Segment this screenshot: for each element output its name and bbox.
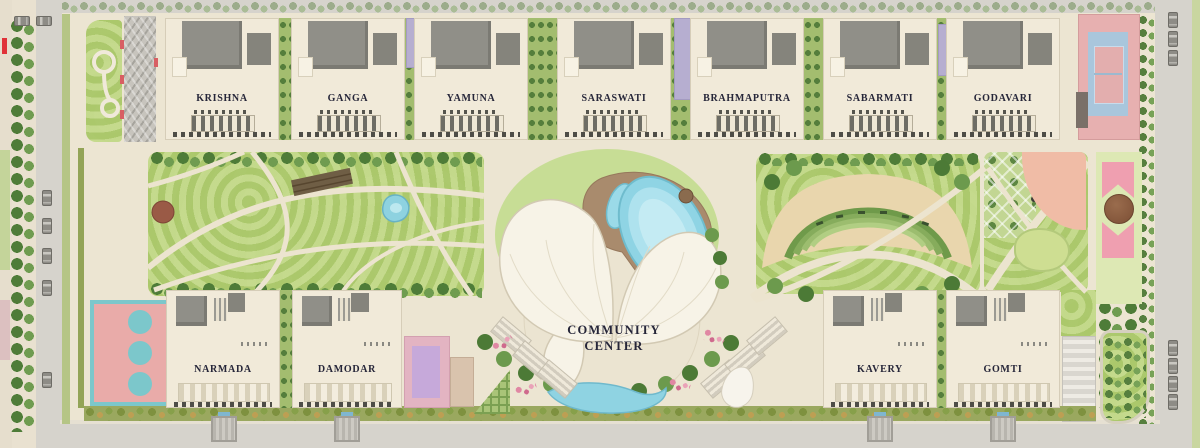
lavender-annex [674,18,691,100]
roof-block [373,33,398,64]
play-mound [1014,228,1070,272]
tower-name-label: NARMADA [167,364,279,375]
stair-hatch [338,298,351,321]
community-center [477,149,739,413]
tower-name-label: KAVERY [824,364,936,375]
tower-kavery: KAVERY [823,290,937,408]
window-dashes [586,110,642,114]
roof-block [574,21,634,69]
window-strip [972,115,1037,132]
tower-name-label: KRISHNA [166,93,278,104]
roof-block [228,293,246,312]
car-icon [1168,31,1178,47]
tower-krishna: KRISHNA [165,18,279,140]
roof-block [639,33,664,64]
roof-block [176,296,207,326]
tower-damodar: DAMODAR [292,290,402,408]
window-dashes [443,110,499,114]
roof-cabin [953,57,968,77]
roof-block [1028,33,1053,64]
stair-hatch [214,298,227,321]
window-dashes [954,402,1053,407]
gate-canopy [997,412,1009,416]
tower-name-label: GOMTI [947,364,1059,375]
community-center-label-line1: COMMUNITY [540,322,688,338]
car-icon [1168,358,1178,374]
roof-block [840,21,900,69]
tower-gate [334,416,360,442]
roof-cabin [298,57,313,77]
roof-block [1008,293,1026,312]
tower-name-label: GANGA [292,93,404,104]
window-dashes [174,402,273,407]
tower-name-label: GODAVARI [947,93,1059,104]
roof-block [302,296,332,326]
window-dashes [1021,342,1048,346]
tower-brahmaputra: BRAHMAPUTRA [690,18,804,140]
park-tree-canopy [152,201,174,223]
tree-canopy-icon [1104,194,1134,224]
window-strip [440,115,505,132]
tennis-court-inner [1094,46,1124,104]
car-icon [1168,340,1178,356]
window-dashes [975,110,1031,114]
window-dashes [831,402,930,407]
tennis-net-line [1094,73,1122,75]
tower-name-label: SARASWATI [558,93,670,104]
roof-block [182,21,242,69]
stair-hatch [994,298,1007,321]
roof-block [963,21,1023,69]
gate-canopy [874,412,886,416]
window-strip [583,115,648,132]
window-strip [317,115,382,132]
car-icon [1168,12,1178,28]
car-icon [1168,376,1178,392]
tower-gap-green [937,290,946,408]
tower-gap-green [280,290,292,408]
roof-block [247,33,272,64]
tower-gomti: GOMTI [946,290,1060,408]
window-dashes [719,110,775,114]
parking-island-trees [1104,336,1146,418]
window-dashes [241,342,268,346]
jacuzzi [679,189,693,203]
tower-gate [211,416,237,442]
tower-name-label: BRAHMAPUTRA [691,93,803,104]
car-icon [14,16,30,26]
court-circle [128,372,152,396]
car-icon [42,372,52,388]
clubhouse-pool [412,346,440,398]
window-dashes [422,132,521,137]
roof-block [772,33,797,64]
tower-godavari: GODAVARI [946,18,1060,140]
window-strip [191,115,256,132]
court-circle [128,310,152,334]
roof-block [707,21,767,69]
car-icon [1168,394,1178,410]
gate-canopy [218,412,230,416]
roof-block [885,293,903,312]
community-center-label-line2: CENTER [540,338,688,354]
roof-cabin [564,57,579,77]
court-circle [128,341,152,365]
tower-saraswati: SARASWATI [557,18,671,140]
tower-name-label: SABARMATI [824,93,936,104]
roof-block [496,33,521,64]
tower-name-label: YAMUNA [415,93,527,104]
roof-cabin [421,57,436,77]
car-icon [42,190,52,206]
entry-garden-paths [94,52,118,116]
car-icon [36,16,52,26]
car-icon [42,280,52,296]
window-dashes [194,110,250,114]
window-dashes [831,132,930,137]
roof-block [905,33,930,64]
window-strip [849,115,914,132]
window-dashes [173,132,272,137]
tower-gate [867,416,893,442]
tower-narmada: NARMADA [166,290,280,408]
tower-ganga: GANGA [291,18,405,140]
roof-cabin [830,57,845,77]
window-dashes [320,110,376,114]
window-dashes [299,132,398,137]
window-dashes [364,342,390,346]
park-pond [383,195,409,222]
amphitheatre [752,160,985,307]
tower-gate [990,416,1016,442]
car-icon [42,218,52,234]
park-paths [148,152,484,296]
roof-block [833,296,864,326]
tower-yamuna: YAMUNA [414,18,528,140]
window-strip [304,383,392,402]
car-icon [42,248,52,264]
roof-block [308,21,368,69]
window-dashes [954,132,1053,137]
stair-hatch [871,298,884,321]
roof-block [351,293,368,312]
clubhouse-annex [450,357,474,407]
window-dashes [698,132,797,137]
community-center-label: COMMUNITY CENTER [540,322,688,355]
court-annex [1076,92,1088,128]
window-dashes [565,132,664,137]
tower-name-label: DAMODAR [293,364,401,375]
window-dashes [852,110,908,114]
window-dashes [299,402,394,407]
roof-cabin [172,57,187,77]
site-plan: KRISHNA GANGA YAMUNA SARASWATI BRAHMAPUT… [0,0,1200,448]
window-strip [835,383,927,402]
tower-sabarmati: SABARMATI [823,18,937,140]
roof-block [956,296,987,326]
roof-block [431,21,491,69]
gate-canopy [341,412,353,416]
roof-cabin [697,57,712,77]
window-strip [958,383,1050,402]
window-dashes [898,342,925,346]
window-strip [178,383,270,402]
window-strip [716,115,781,132]
car-icon [1168,50,1178,66]
